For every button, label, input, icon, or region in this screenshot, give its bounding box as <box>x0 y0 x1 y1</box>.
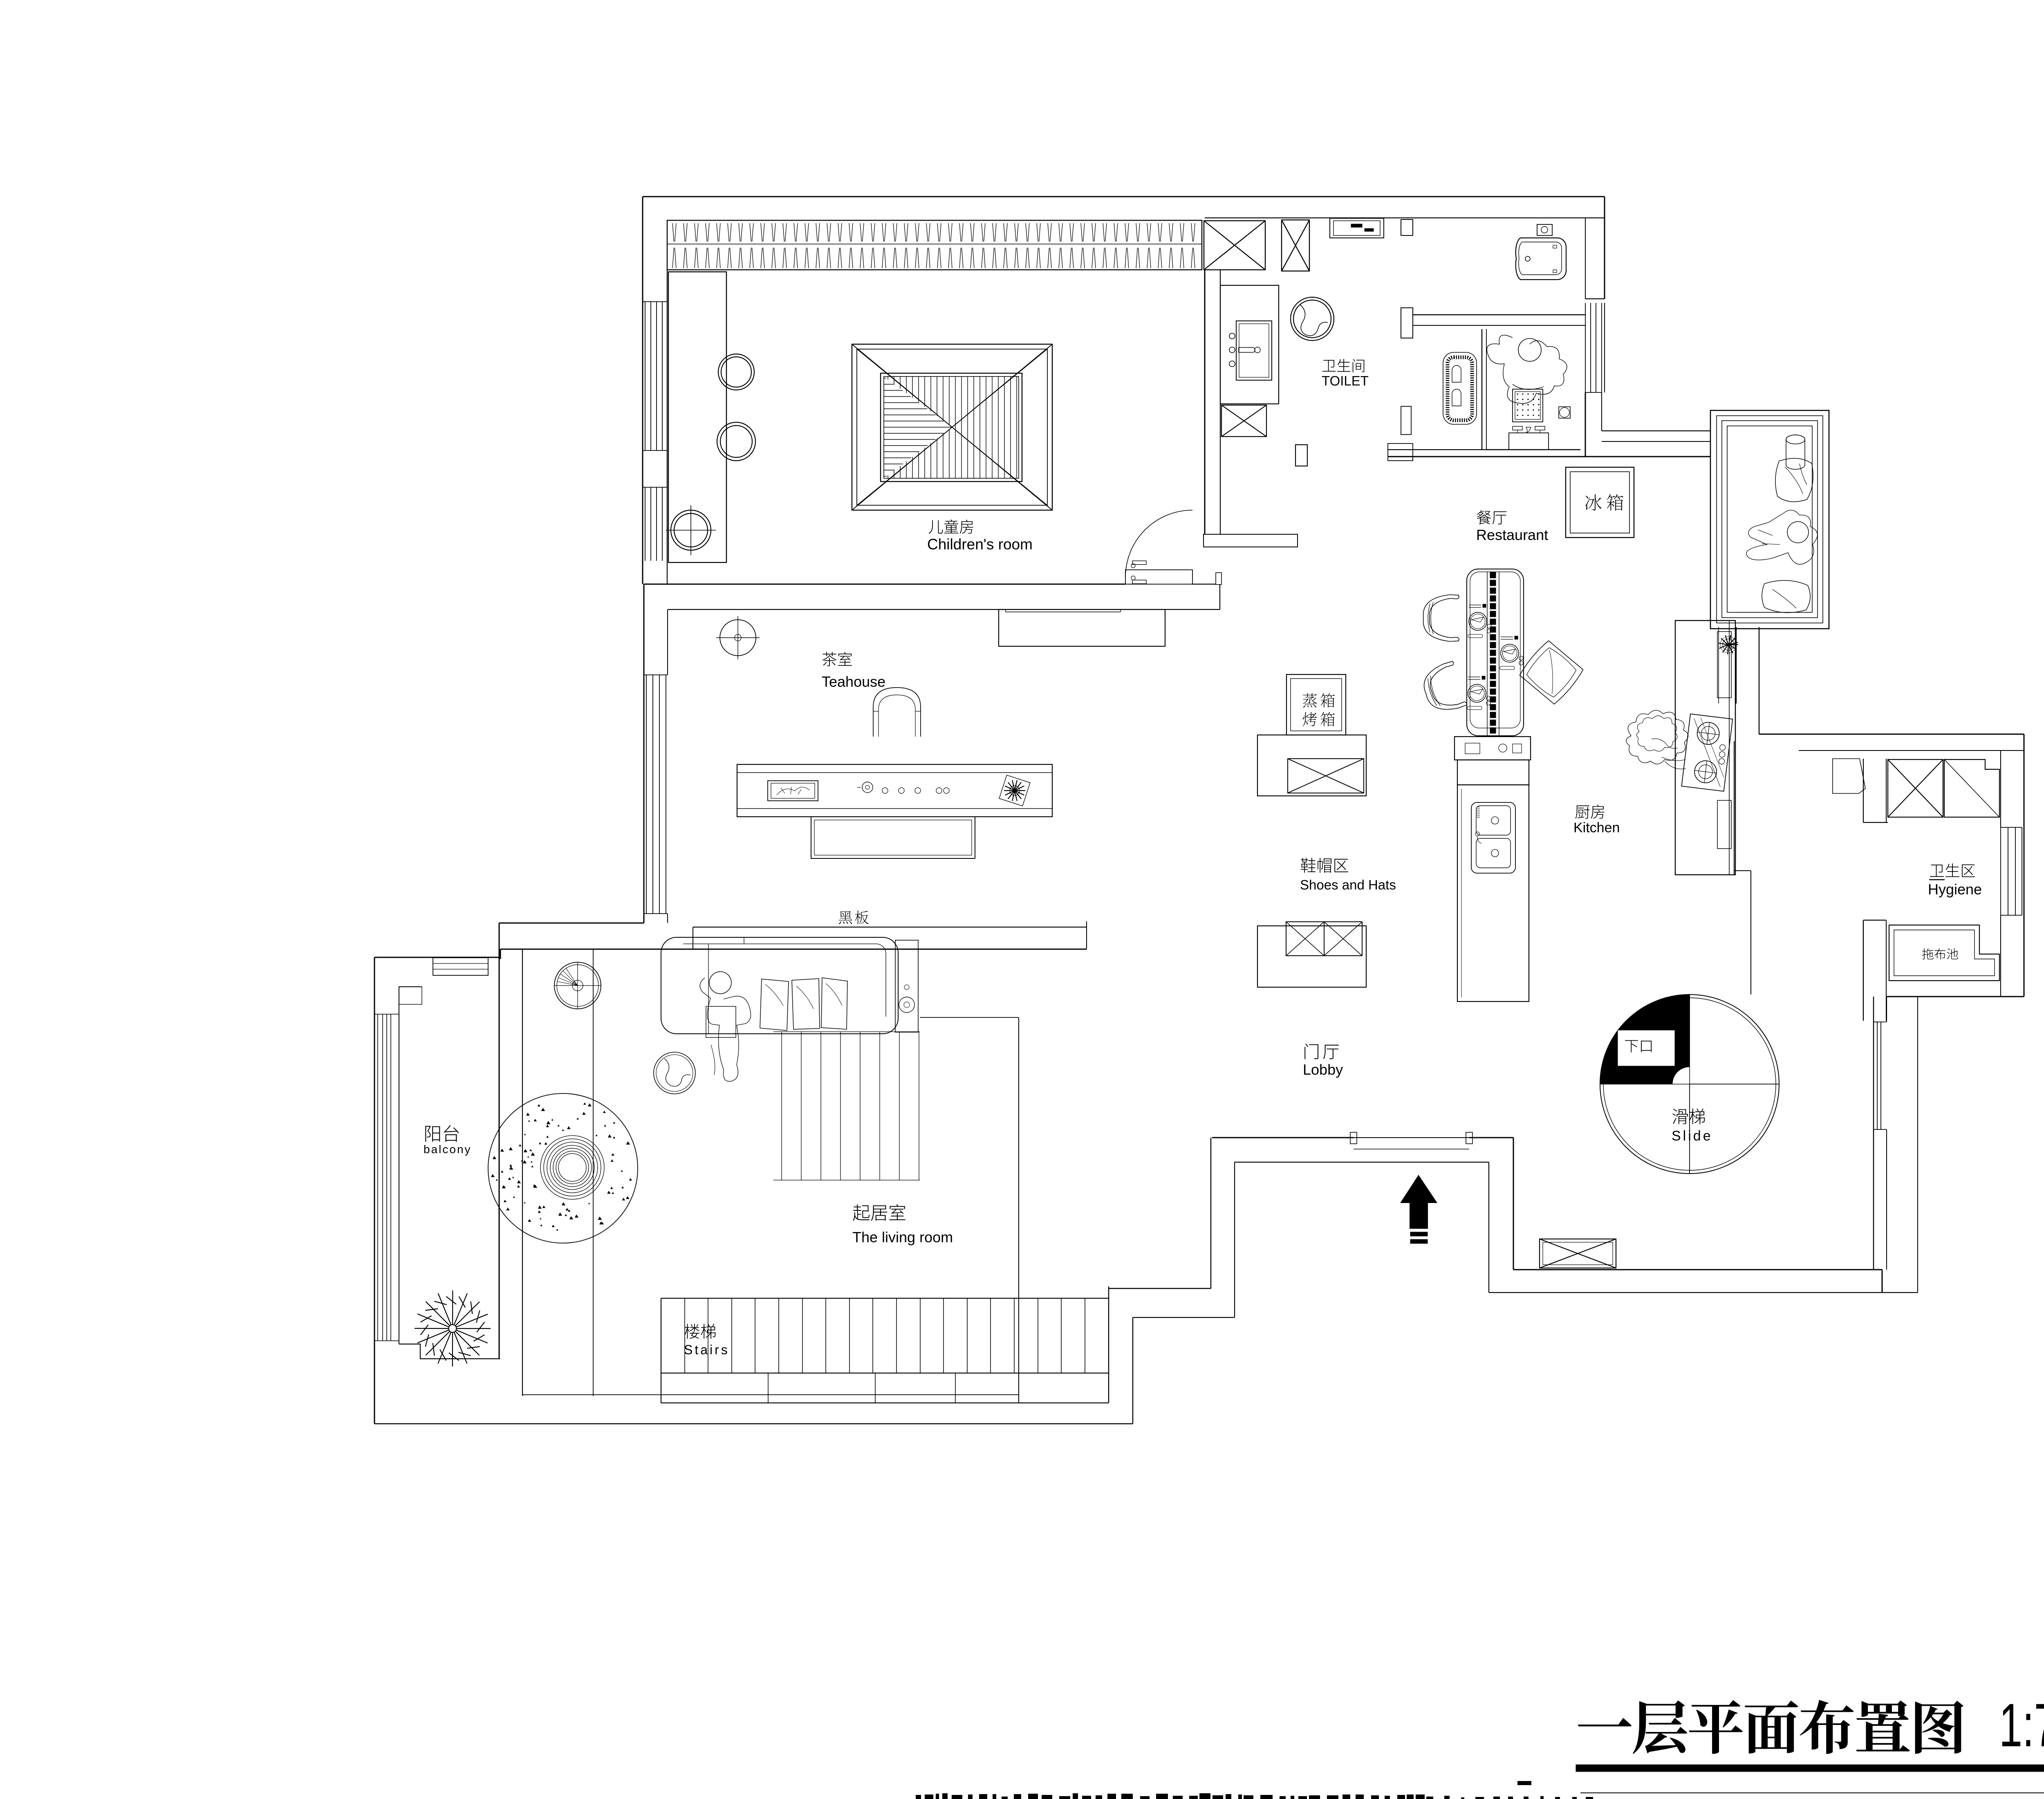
svg-text:Lobby: Lobby <box>1303 1061 1343 1078</box>
svg-text:Children's room: Children's room <box>927 536 1033 553</box>
svg-text:Restaurant: Restaurant <box>1476 526 1548 543</box>
svg-text:Kitchen: Kitchen <box>1573 820 1620 836</box>
svg-text:Hygiene: Hygiene <box>1928 881 1982 898</box>
svg-text:Teahouse: Teahouse <box>822 673 885 690</box>
svg-text:balcony: balcony <box>424 1143 472 1156</box>
svg-text:TOILET: TOILET <box>1322 373 1369 388</box>
svg-text:Stairs: Stairs <box>684 1342 730 1357</box>
svg-text:Slide: Slide <box>1672 1128 1713 1144</box>
svg-text:The living room: The living room <box>852 1229 953 1246</box>
svg-text:1:70: 1:70 <box>1999 1691 2044 1759</box>
svg-text:Shoes and Hats: Shoes and Hats <box>1300 877 1396 892</box>
